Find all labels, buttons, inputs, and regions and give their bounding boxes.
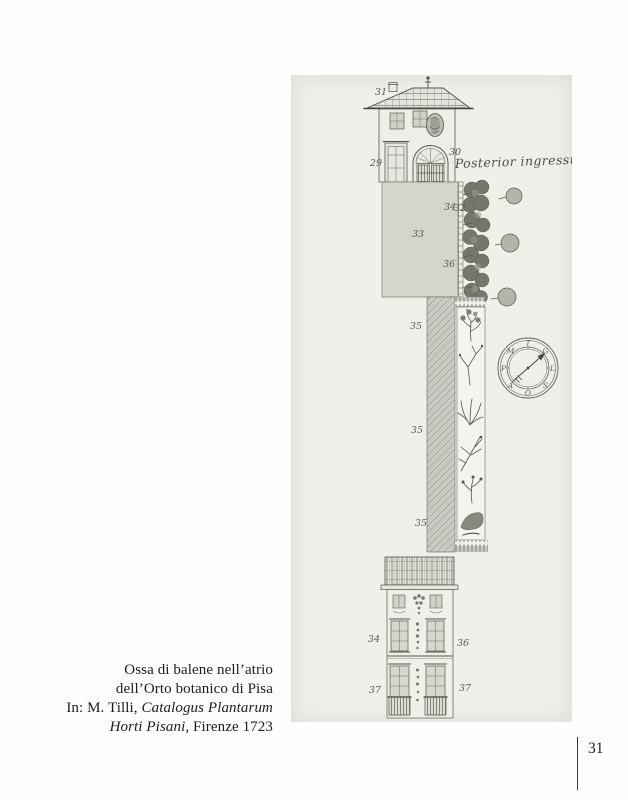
label-34-32b: 32 [454, 203, 466, 214]
compass-letter-n: T [525, 339, 531, 348]
compass-letter-e: L [549, 364, 555, 373]
bottom-roof-cornice [381, 585, 458, 590]
label-36-trees: 36 [443, 259, 455, 270]
top-window-right [413, 111, 427, 127]
arched-gate [413, 146, 448, 183]
engraving-drawing: 31 29 30 Posterior ingressus 33 [291, 75, 572, 722]
label-35-3: 35 [415, 518, 427, 529]
caption: Ossa di balene nell’atrio dell’Orto bota… [23, 661, 273, 737]
book-page: 31 29 30 Posterior ingressus 33 [0, 0, 628, 800]
left-door [383, 142, 409, 183]
label-31: 31 [375, 87, 387, 98]
compass-rose: T G L S O A P M [498, 338, 558, 398]
long-corridor: 35 35 35 [410, 297, 488, 552]
bottom-building: 34 36 37 37 [368, 557, 472, 718]
crenellation-bottom [455, 540, 488, 552]
label-29: 29 [369, 158, 382, 169]
first-floor-window-left [389, 619, 410, 652]
chimney-icon [388, 83, 398, 92]
crenellation-top [455, 297, 485, 307]
first-floor-window-right [425, 619, 446, 652]
top-building: 31 29 30 Posterior ingressus [364, 77, 572, 182]
compass-letter-s: O [525, 389, 531, 398]
caption-line-3: In: M. Tilli, Catalogus Plantarum [23, 699, 273, 718]
label-35-1: 35 [410, 321, 422, 332]
page-number-rule [577, 737, 578, 790]
label-33: 33 [412, 229, 424, 240]
label-36-facade: 36 [457, 638, 469, 649]
ground-floor-window-right [424, 664, 448, 715]
compass-letter-se: S [543, 381, 548, 390]
caption-line-4: Horti Pisani, Firenze 1723 [23, 718, 273, 737]
page-number: 31 [588, 740, 604, 758]
espalier-wall [459, 182, 464, 297]
caption-line-3-title: Catalogus Plantarum [142, 700, 274, 716]
label-34-facade: 34 [368, 634, 380, 645]
courtyard-block: 33 [382, 182, 463, 297]
roof-finial-icon [426, 77, 431, 88]
compass-needle-icon [512, 353, 546, 383]
hatched-wall-strip [427, 297, 455, 552]
caption-line-4-suffix: , Firenze 1723 [185, 719, 273, 735]
top-window-left [390, 113, 404, 129]
inscription-posterior-ingressus: Posterior ingressus [454, 151, 572, 171]
bottom-roof [385, 557, 454, 585]
compass-letter-nw: M [506, 347, 515, 356]
caption-line-4-title: Horti Pisani [110, 719, 186, 735]
balcony-railing-left [389, 697, 410, 715]
round-trees [498, 188, 522, 306]
label-37-left: 37 [369, 685, 382, 696]
caption-line-3-prefix: In: M. Tilli, [66, 700, 141, 716]
caption-line-2: dell’Orto botanico di Pisa [23, 680, 273, 699]
compass-letter-sw: A [507, 381, 514, 390]
label-35-2: 35 [411, 425, 423, 436]
emblem-icon [427, 114, 444, 137]
label-37-right: 37 [459, 683, 472, 694]
compass-letter-w: P [500, 364, 507, 373]
caption-line-1: Ossa di balene nell’atrio [23, 661, 273, 680]
engraving-plate: 31 29 30 Posterior ingressus 33 [291, 75, 572, 722]
balcony-railing-right [425, 697, 446, 715]
ground-floor-window-left [388, 664, 412, 715]
attic-window-left [393, 595, 405, 608]
attic-window-right [430, 595, 442, 608]
